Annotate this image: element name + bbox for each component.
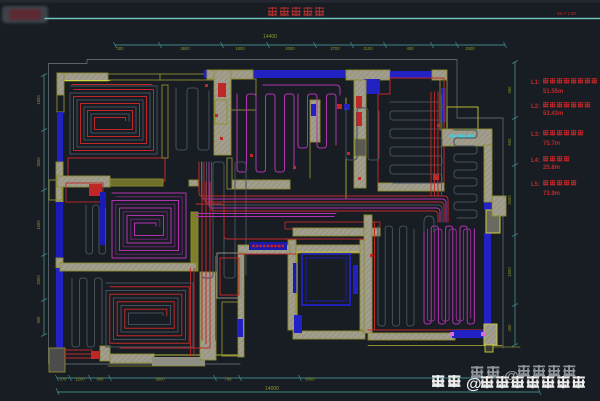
svg-text:L4:: L4: bbox=[531, 158, 540, 164]
svg-text:75.7m: 75.7m bbox=[543, 141, 560, 147]
svg-text:6000: 6000 bbox=[305, 377, 315, 382]
svg-text:@: @ bbox=[466, 376, 482, 393]
svg-text:300: 300 bbox=[36, 316, 41, 324]
svg-text:370: 370 bbox=[60, 377, 68, 382]
svg-text:1800: 1800 bbox=[235, 46, 245, 51]
svg-text:1500: 1500 bbox=[36, 220, 41, 230]
svg-text:2500: 2500 bbox=[465, 46, 475, 51]
svg-text:450: 450 bbox=[507, 86, 512, 94]
svg-text:25.8m: 25.8m bbox=[543, 165, 560, 171]
svg-text:53.43m: 53.43m bbox=[543, 111, 563, 117]
svg-text:73.9m: 73.9m bbox=[543, 191, 560, 197]
svg-text:45-7 1:50: 45-7 1:50 bbox=[557, 11, 577, 16]
svg-text:14400: 14400 bbox=[263, 34, 277, 40]
svg-text:1500: 1500 bbox=[507, 267, 512, 277]
svg-text:1500: 1500 bbox=[36, 95, 41, 105]
svg-text:L5:: L5: bbox=[531, 182, 540, 188]
svg-text:L3:: L3: bbox=[531, 132, 540, 138]
svg-text:51.55m: 51.55m bbox=[543, 89, 563, 95]
svg-text:2100: 2100 bbox=[363, 46, 373, 51]
svg-text:3600: 3600 bbox=[180, 46, 190, 51]
svg-text:900: 900 bbox=[97, 377, 105, 382]
svg-text:3450: 3450 bbox=[507, 195, 512, 205]
svg-text:14000: 14000 bbox=[265, 386, 279, 392]
svg-text:3600: 3600 bbox=[36, 157, 41, 167]
svg-text:450: 450 bbox=[407, 46, 415, 51]
svg-text:L2:: L2: bbox=[531, 104, 540, 110]
svg-text:450: 450 bbox=[507, 324, 512, 332]
svg-text:3600: 3600 bbox=[155, 377, 165, 382]
svg-text:2000: 2000 bbox=[285, 46, 295, 51]
svg-text:700: 700 bbox=[225, 377, 233, 382]
svg-text:L1:: L1: bbox=[531, 80, 540, 86]
svg-text:600: 600 bbox=[507, 138, 512, 146]
svg-text:3300: 3300 bbox=[36, 275, 41, 285]
svg-text:300: 300 bbox=[117, 46, 125, 51]
svg-text:1200: 1200 bbox=[75, 377, 85, 382]
svg-text:2700: 2700 bbox=[330, 46, 340, 51]
